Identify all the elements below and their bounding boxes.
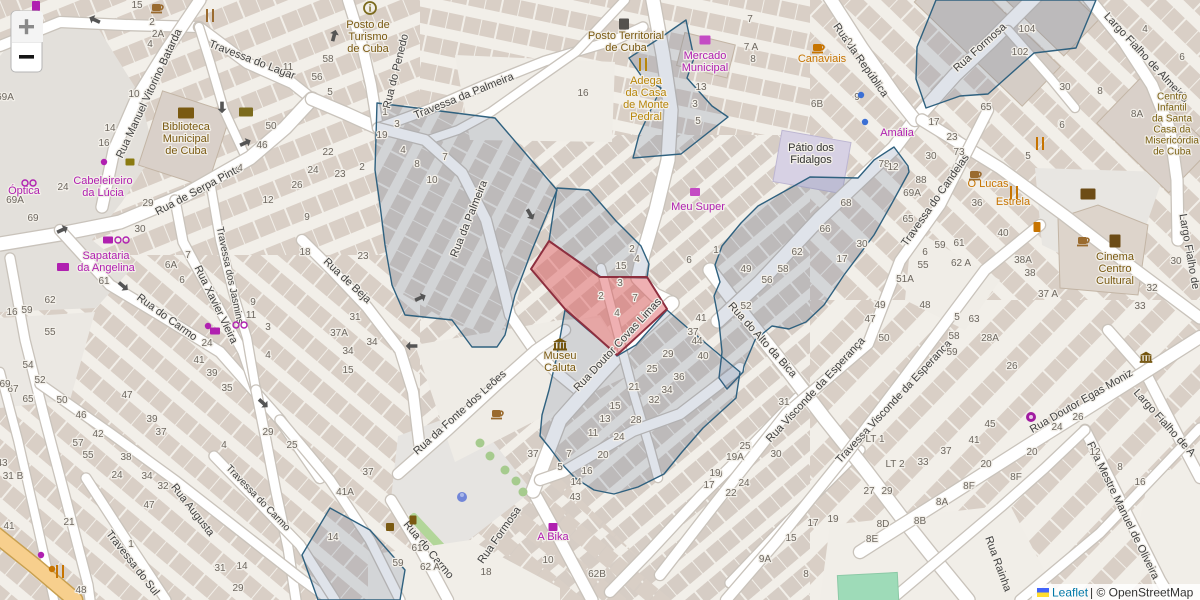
- svg-text:Cultural: Cultural: [1096, 275, 1134, 287]
- svg-text:Posto de: Posto de: [346, 19, 389, 31]
- svg-text:19: 19: [376, 130, 388, 141]
- svg-text:61: 61: [98, 276, 110, 287]
- svg-text:49: 49: [740, 264, 752, 275]
- svg-text:26: 26: [1006, 361, 1018, 372]
- svg-text:8F: 8F: [1010, 472, 1022, 483]
- svg-text:22: 22: [322, 147, 334, 158]
- svg-text:28: 28: [630, 415, 642, 426]
- svg-text:16: 16: [6, 307, 18, 318]
- svg-text:4: 4: [614, 308, 620, 319]
- svg-text:37: 37: [527, 449, 539, 460]
- svg-text:42: 42: [92, 429, 104, 440]
- svg-text:| © OpenStreetMap: | © OpenStreetMap: [1090, 586, 1194, 600]
- svg-text:Caluta: Caluta: [544, 362, 577, 374]
- svg-text:62 A: 62 A: [420, 562, 440, 573]
- svg-text:8: 8: [414, 159, 420, 170]
- svg-text:Posto Territorial: Posto Territorial: [588, 30, 664, 42]
- svg-text:26: 26: [1072, 412, 1084, 423]
- svg-text:69: 69: [27, 213, 39, 224]
- svg-text:Pedral: Pedral: [630, 111, 662, 123]
- svg-text:36: 36: [971, 198, 983, 209]
- svg-text:Municipal: Municipal: [163, 133, 209, 145]
- svg-text:de Cuba: de Cuba: [605, 42, 647, 54]
- svg-text:38: 38: [1024, 268, 1036, 279]
- svg-text:4: 4: [1142, 24, 1148, 35]
- svg-text:20: 20: [980, 459, 992, 470]
- svg-text:32: 32: [157, 481, 169, 492]
- svg-text:31: 31: [778, 397, 790, 408]
- svg-text:de Cuba: de Cuba: [1153, 147, 1191, 158]
- svg-text:3: 3: [617, 278, 623, 289]
- svg-text:6: 6: [686, 255, 692, 266]
- svg-text:38A: 38A: [1014, 255, 1032, 266]
- svg-text:8B: 8B: [914, 516, 927, 527]
- svg-text:10: 10: [128, 89, 140, 100]
- svg-text:62: 62: [44, 295, 56, 306]
- svg-text:32: 32: [1146, 283, 1158, 294]
- svg-text:Estrela: Estrela: [996, 196, 1031, 208]
- svg-text:8: 8: [1117, 462, 1123, 473]
- svg-text:61: 61: [953, 238, 965, 249]
- svg-text:15: 15: [785, 533, 797, 544]
- svg-text:24: 24: [613, 432, 625, 443]
- svg-text:28A: 28A: [981, 333, 999, 344]
- svg-text:23: 23: [946, 132, 958, 143]
- svg-text:13: 13: [695, 82, 707, 93]
- svg-text:8A: 8A: [1131, 109, 1144, 120]
- svg-text:17: 17: [836, 254, 848, 265]
- svg-text:9: 9: [250, 297, 256, 308]
- svg-text:65: 65: [902, 214, 914, 225]
- svg-text:8E: 8E: [866, 534, 879, 545]
- svg-text:4: 4: [400, 145, 406, 156]
- svg-text:12: 12: [1089, 447, 1101, 458]
- svg-text:55: 55: [917, 260, 929, 271]
- svg-text:8: 8: [1097, 86, 1103, 97]
- svg-text:3: 3: [265, 322, 271, 333]
- svg-text:41: 41: [695, 313, 707, 324]
- svg-text:48: 48: [919, 300, 931, 311]
- svg-text:LT 1: LT 1: [865, 434, 885, 445]
- svg-text:17: 17: [928, 117, 940, 128]
- svg-text:17: 17: [807, 518, 819, 529]
- svg-text:5: 5: [954, 312, 960, 323]
- svg-text:de Cuba: de Cuba: [165, 145, 207, 157]
- svg-text:37A: 37A: [330, 328, 348, 339]
- svg-text:23: 23: [357, 251, 369, 262]
- svg-text:2: 2: [847, 37, 853, 48]
- svg-text:19: 19: [709, 468, 721, 479]
- svg-text:63: 63: [968, 314, 980, 325]
- svg-text:18: 18: [299, 247, 311, 258]
- svg-text:3: 3: [394, 119, 400, 130]
- svg-text:62: 62: [791, 247, 803, 258]
- svg-text:25: 25: [286, 440, 298, 451]
- svg-text:43: 43: [569, 492, 581, 503]
- svg-text:54: 54: [22, 360, 34, 371]
- svg-text:i: i: [369, 4, 372, 15]
- svg-text:9A: 9A: [759, 554, 772, 565]
- svg-text:Cinema: Cinema: [1096, 251, 1135, 263]
- svg-text:8: 8: [803, 569, 809, 580]
- svg-text:14: 14: [327, 532, 339, 543]
- svg-text:56: 56: [761, 275, 773, 286]
- svg-text:23: 23: [334, 169, 346, 180]
- svg-text:Infantil: Infantil: [1157, 103, 1186, 114]
- svg-text:47: 47: [121, 390, 133, 401]
- svg-text:12: 12: [262, 195, 274, 206]
- svg-text:16: 16: [577, 88, 589, 99]
- svg-text:Canaviais: Canaviais: [798, 53, 847, 65]
- svg-text:Museu: Museu: [543, 350, 576, 362]
- svg-text:59: 59: [946, 347, 958, 358]
- svg-text:58: 58: [322, 54, 334, 65]
- svg-text:25: 25: [646, 364, 658, 375]
- svg-text:59: 59: [21, 305, 33, 316]
- svg-text:24: 24: [57, 182, 69, 193]
- svg-text:6: 6: [1059, 120, 1065, 131]
- svg-text:da Casa: da Casa: [626, 87, 668, 99]
- svg-text:30: 30: [1170, 256, 1182, 267]
- svg-text:62 A: 62 A: [951, 258, 971, 269]
- svg-text:25: 25: [739, 441, 751, 452]
- svg-text:46: 46: [75, 410, 87, 421]
- svg-text:29: 29: [662, 349, 674, 360]
- svg-text:104: 104: [1019, 24, 1036, 35]
- svg-text:52: 52: [740, 301, 752, 312]
- svg-text:7: 7: [747, 14, 753, 25]
- svg-text:52: 52: [34, 375, 46, 386]
- svg-text:20: 20: [597, 450, 609, 461]
- svg-text:34: 34: [661, 385, 673, 396]
- svg-text:44: 44: [691, 336, 703, 347]
- svg-text:4: 4: [634, 254, 640, 265]
- svg-text:2A: 2A: [152, 29, 165, 40]
- svg-text:68: 68: [840, 198, 852, 209]
- svg-text:45: 45: [984, 419, 996, 430]
- svg-text:66: 66: [819, 224, 831, 235]
- svg-text:Turismo: Turismo: [348, 31, 387, 43]
- svg-text:41: 41: [3, 521, 15, 532]
- svg-text:69A: 69A: [903, 188, 921, 199]
- svg-text:69A: 69A: [0, 92, 14, 103]
- svg-text:11: 11: [588, 428, 599, 439]
- svg-text:39: 39: [206, 368, 218, 379]
- svg-text:31 B: 31 B: [3, 471, 24, 482]
- svg-text:30: 30: [134, 224, 146, 235]
- svg-text:41: 41: [193, 355, 205, 366]
- svg-text:55: 55: [82, 450, 94, 461]
- svg-text:30: 30: [1059, 82, 1071, 93]
- svg-text:19: 19: [827, 514, 839, 525]
- svg-text:Fidalgos: Fidalgos: [790, 154, 832, 166]
- svg-text:15: 15: [131, 0, 143, 11]
- svg-text:29: 29: [881, 486, 893, 497]
- svg-text:15: 15: [609, 401, 621, 412]
- svg-text:6: 6: [1179, 52, 1185, 63]
- svg-text:39: 39: [146, 414, 158, 425]
- svg-text:24: 24: [201, 338, 213, 349]
- svg-text:59: 59: [392, 558, 404, 569]
- svg-text:Centro: Centro: [1157, 92, 1187, 103]
- svg-text:da Lúcia: da Lúcia: [82, 187, 124, 199]
- svg-text:37: 37: [940, 446, 952, 457]
- svg-text:Pátio dos: Pátio dos: [788, 142, 834, 154]
- svg-text:2: 2: [359, 162, 365, 173]
- svg-text:8A: 8A: [936, 497, 949, 508]
- svg-text:Adega: Adega: [630, 75, 663, 87]
- svg-text:Misericórdia: Misericórdia: [1145, 136, 1199, 147]
- svg-text:24: 24: [1051, 422, 1063, 433]
- svg-text:2: 2: [598, 291, 604, 302]
- svg-text:31: 31: [214, 563, 226, 574]
- svg-text:5: 5: [695, 116, 701, 127]
- svg-text:24: 24: [307, 165, 319, 176]
- svg-text:22: 22: [725, 488, 737, 499]
- svg-text:34: 34: [366, 337, 378, 348]
- svg-text:40: 40: [697, 351, 709, 362]
- svg-text:11: 11: [246, 310, 257, 321]
- svg-text:10: 10: [426, 175, 438, 186]
- svg-text:16: 16: [1134, 477, 1146, 488]
- svg-text:Meu Super: Meu Super: [671, 201, 725, 213]
- svg-text:5: 5: [1025, 151, 1031, 162]
- svg-text:88: 88: [915, 175, 927, 186]
- svg-text:58: 58: [777, 264, 789, 275]
- svg-text:1: 1: [128, 539, 134, 550]
- svg-text:65: 65: [980, 102, 992, 113]
- svg-text:8: 8: [750, 54, 756, 65]
- svg-text:51A: 51A: [896, 274, 914, 285]
- svg-text:50: 50: [56, 395, 68, 406]
- svg-text:14: 14: [236, 561, 248, 572]
- svg-text:40: 40: [997, 228, 1009, 239]
- svg-text:14: 14: [570, 477, 582, 488]
- svg-text:47: 47: [864, 314, 876, 325]
- svg-text:49: 49: [874, 300, 886, 311]
- svg-text:34: 34: [342, 346, 354, 357]
- svg-text:37: 37: [362, 467, 374, 478]
- svg-text:62B: 62B: [588, 569, 606, 580]
- svg-text:14: 14: [104, 123, 116, 134]
- svg-text:da Angelina: da Angelina: [77, 262, 135, 274]
- svg-text:37 A: 37 A: [1038, 289, 1058, 300]
- svg-text:Mercado: Mercado: [684, 50, 727, 62]
- svg-text:de Monte: de Monte: [623, 99, 669, 111]
- svg-text:30: 30: [925, 151, 937, 162]
- svg-text:56: 56: [311, 72, 323, 83]
- svg-text:10: 10: [542, 555, 554, 566]
- svg-text:16: 16: [98, 138, 110, 149]
- svg-text:LT 2: LT 2: [885, 459, 905, 470]
- svg-text:61: 61: [411, 543, 423, 554]
- svg-text:6: 6: [179, 275, 185, 286]
- svg-text:1: 1: [713, 245, 719, 256]
- svg-text:27: 27: [863, 486, 875, 497]
- svg-text:4: 4: [147, 39, 153, 50]
- svg-text:Municipal: Municipal: [682, 62, 728, 74]
- svg-text:46: 46: [256, 140, 268, 151]
- svg-text:34: 34: [141, 471, 153, 482]
- svg-text:2: 2: [149, 17, 155, 28]
- svg-text:Sapataria: Sapataria: [82, 250, 130, 262]
- svg-text:41: 41: [968, 435, 980, 446]
- svg-text:33: 33: [917, 457, 929, 468]
- svg-text:18: 18: [480, 567, 492, 578]
- svg-text:17: 17: [703, 480, 715, 491]
- svg-text:7: 7: [632, 293, 638, 304]
- svg-text:65: 65: [22, 394, 34, 405]
- svg-text:36: 36: [673, 372, 685, 383]
- svg-text:31: 31: [349, 312, 361, 323]
- svg-text:4: 4: [237, 163, 243, 174]
- svg-text:58: 58: [948, 331, 960, 342]
- svg-text:1: 1: [382, 107, 388, 118]
- svg-text:12: 12: [887, 162, 899, 173]
- svg-text:38: 38: [120, 452, 132, 463]
- svg-text:da Santa: da Santa: [1152, 114, 1192, 125]
- svg-text:19A: 19A: [726, 452, 744, 463]
- svg-text:50: 50: [265, 121, 277, 132]
- svg-text:Centro: Centro: [1098, 263, 1131, 275]
- svg-text:29: 29: [142, 198, 154, 209]
- svg-text:9: 9: [304, 212, 310, 223]
- svg-text:4: 4: [221, 440, 227, 451]
- svg-text:de Cuba: de Cuba: [347, 43, 389, 55]
- svg-text:7: 7: [442, 152, 448, 163]
- svg-text:Amália: Amália: [880, 127, 915, 139]
- svg-text:20: 20: [1026, 447, 1038, 458]
- svg-text:Leaflet: Leaflet: [1052, 586, 1089, 600]
- svg-text:24: 24: [111, 470, 123, 481]
- svg-text:Casa da: Casa da: [1153, 125, 1191, 136]
- svg-text:15: 15: [615, 261, 627, 272]
- svg-text:11: 11: [283, 62, 294, 73]
- svg-text:30: 30: [770, 449, 782, 460]
- svg-text:50: 50: [878, 333, 890, 344]
- svg-text:A Bika: A Bika: [537, 531, 569, 543]
- svg-text:15: 15: [342, 365, 354, 376]
- svg-text:4: 4: [265, 350, 271, 361]
- svg-text:69A: 69A: [6, 195, 24, 206]
- svg-text:35: 35: [221, 383, 233, 394]
- svg-text:57: 57: [72, 438, 84, 449]
- svg-text:37: 37: [155, 427, 167, 438]
- svg-text:30: 30: [856, 239, 868, 250]
- svg-text:6B: 6B: [811, 99, 824, 110]
- svg-text:24: 24: [738, 478, 750, 489]
- svg-text:26: 26: [291, 180, 303, 191]
- svg-text:16: 16: [581, 466, 593, 477]
- svg-text:21: 21: [63, 517, 75, 528]
- svg-text:29: 29: [232, 583, 244, 594]
- svg-text:21: 21: [628, 382, 640, 393]
- svg-text:7: 7: [185, 250, 191, 261]
- svg-text:Biblioteca: Biblioteca: [162, 121, 211, 133]
- svg-text:69: 69: [0, 379, 11, 390]
- svg-text:32: 32: [648, 395, 660, 406]
- svg-text:41A: 41A: [336, 487, 354, 498]
- svg-text:8F: 8F: [963, 481, 975, 492]
- svg-text:29: 29: [262, 427, 274, 438]
- svg-text:55: 55: [44, 327, 56, 338]
- svg-text:73: 73: [953, 147, 965, 158]
- svg-text:Cabeleireiro: Cabeleireiro: [73, 175, 132, 187]
- svg-text:59: 59: [934, 240, 946, 251]
- svg-text:43: 43: [0, 458, 8, 469]
- svg-text:5: 5: [557, 462, 563, 473]
- svg-text:7: 7: [566, 449, 572, 460]
- svg-text:8D: 8D: [877, 519, 890, 530]
- svg-text:33: 33: [1134, 301, 1146, 312]
- svg-text:47: 47: [143, 500, 155, 511]
- svg-text:102: 102: [1012, 47, 1029, 58]
- svg-text:5: 5: [327, 87, 333, 98]
- svg-text:48: 48: [75, 585, 87, 596]
- svg-text:6A: 6A: [165, 260, 178, 271]
- svg-text:6: 6: [922, 247, 928, 258]
- svg-text:7 A: 7 A: [744, 42, 759, 53]
- svg-text:3: 3: [692, 99, 698, 110]
- svg-text:13: 13: [599, 414, 611, 425]
